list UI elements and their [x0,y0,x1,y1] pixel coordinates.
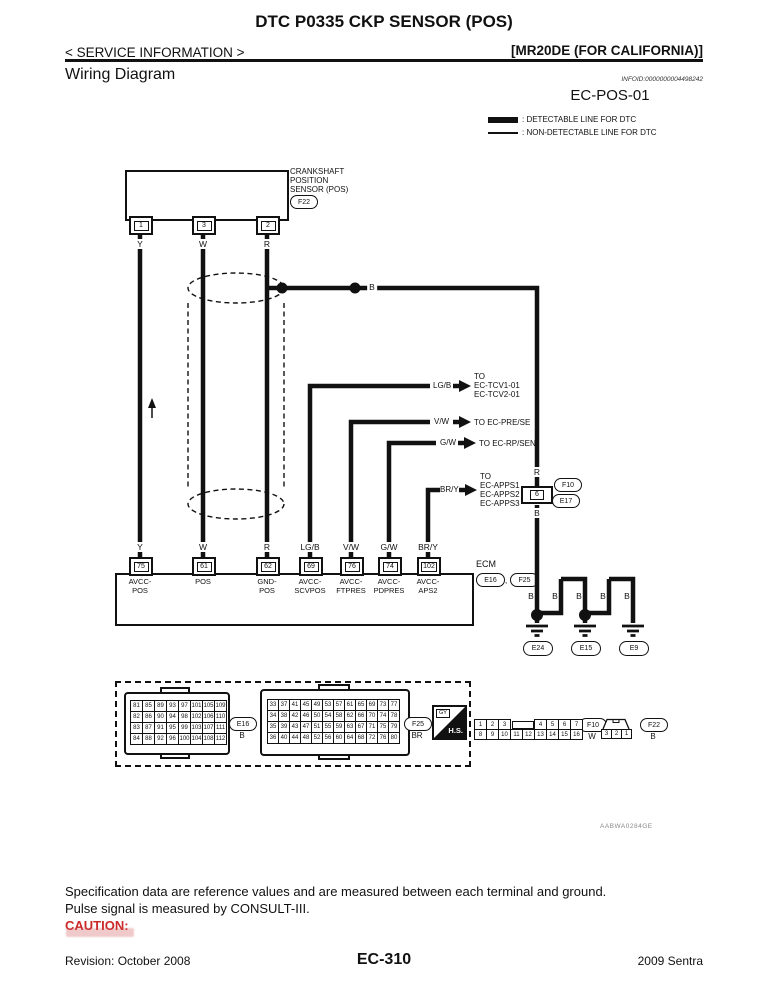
wire-color-y-top: Y [135,239,145,249]
f25-view-color: BR [404,731,430,740]
ground-symbols [526,626,644,636]
branch-wire-vw: V/W [434,417,449,426]
wire-color-w-bottom: W [197,542,209,552]
harness-side-icon: GY H.S. [432,705,467,740]
inline-wire-below: B [532,508,542,518]
sensor-pin-1: 1 [129,216,153,235]
e16-pin-grid: 8185899397101105109828690949810210611083… [131,700,227,745]
branch-wire-gw: G/W [440,438,456,447]
splice-wire-color-b: B [367,282,377,292]
wire-color-bry-bottom: BR/Y [416,542,440,552]
wire-color-r-bottom: R [262,542,272,552]
harness-side-label: H.S. [448,726,463,735]
pin-cell: 80 [388,732,400,744]
inline-connector-box: 6 [521,486,553,504]
connector-f10-oval: F10 [554,478,582,492]
f25-pin-grid: 3337414549535761656973773438424650545862… [268,699,400,744]
sensor-pin-3: 3 [192,216,216,235]
ecm-signal-avcc-aps2: AVCC-APS2 [405,578,451,595]
ecm-signal-avcc-scvpos: AVCC-SCVPOS [287,578,333,595]
f25-view-oval: F25 [404,717,432,731]
f10-pin-grid: 123 4567 8910111213141516 [475,719,583,740]
manual-page: DTC P0335 CKP SENSOR (POS) < SERVICE INF… [0,0,768,994]
pin-cell: 16 [570,729,583,740]
wiring-lines [0,0,768,994]
ecm-signal-pos: POS [180,578,226,587]
wire-color-y-bottom: Y [135,542,145,552]
f10-keyway [512,721,534,729]
wire-color-lgb-bottom: LG/B [298,542,321,552]
ecm-terminal-102: 102 [417,557,441,576]
ecm-terminal-74: 74 [378,557,402,576]
wire-color-gw-bottom: G/W [379,542,400,552]
wire-color-w-top: W [197,239,209,249]
inline-wire-above: R [532,467,542,477]
wire-color-vw-bottom: V/W [341,542,361,552]
ckp-sensor-box [125,170,289,221]
ecm-signal-gnd-pos: GND-POS [244,578,290,595]
inline-connector-pin: 6 [530,490,544,500]
pin-cell: 1 [621,729,632,739]
pin-cell: 112 [214,733,227,745]
ecm-terminal-75: 75 [129,557,153,576]
ecm-terminal-62: 62 [256,557,280,576]
wire-color-r-top: R [262,239,272,249]
ecm-terminal-76: 76 [340,557,364,576]
ecm-signal-avcc-pos: AVCC-POS [117,578,163,595]
branch-wire-lgb: LG/B [433,381,451,390]
ecm-terminal-69: 69 [299,557,323,576]
connector-color-tag: GY [436,709,450,718]
ecm-terminal-61: 61 [192,557,216,576]
connector-e17-oval: E17 [552,494,580,508]
branch-wire-bry: BR/Y [440,485,459,494]
f22-pin-grid: 321 [602,729,632,739]
sensor-pin-2: 2 [256,216,280,235]
